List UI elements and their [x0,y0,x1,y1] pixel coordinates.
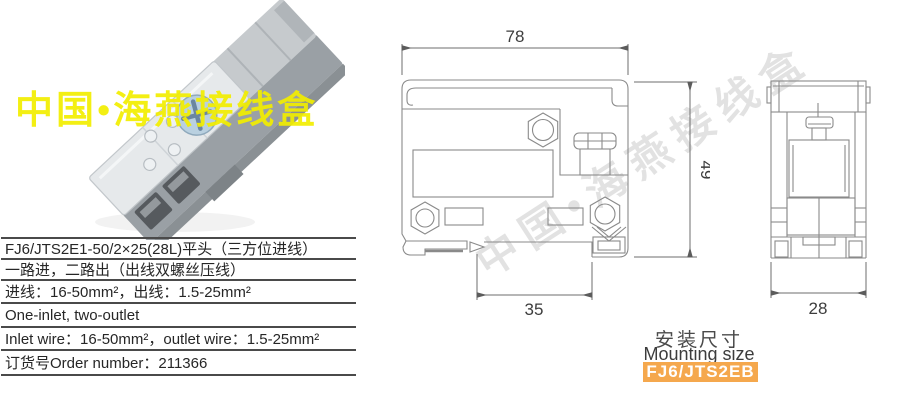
dim-label-depth: 28 [809,299,828,318]
front-view-drawing: 78 49 35 [385,18,710,323]
hex-screw-left-icon [411,202,439,234]
model-badge: FJ6/JTS2EB [643,362,758,382]
dim-label-rail: 35 [525,300,544,319]
top-screw [806,103,833,140]
front-view-dimensions: 78 49 35 [402,27,710,319]
product-datasheet: 中国•海燕接线盒 中国•海燕接线盒 FJ6/JTS2E1-50/2×25(28L… [0,0,900,411]
spec-table: FJ6/JTS2E1-50/2×25(28L)平头（三方位进线） 一路进，二路出… [1,237,356,376]
front-view-body [402,80,628,257]
side-view-drawing: 28 [748,58,900,320]
spec-row-wire-en: Inlet wire：16-50mm²，outlet wire：1.5-25mm… [1,326,356,349]
dim-label-height: 49 [697,161,710,180]
spec-row-wire-cn: 进线：16-50mm²，出线：1.5-25mm² [1,279,356,302]
side-clamp-screw [574,133,616,175]
side-view-dimensions: 28 [771,262,866,318]
spec-row-config-en: One-inlet, two-outlet [1,302,356,326]
spec-row-config-cn: 一路进，二路出（出线双螺丝压线） [1,258,356,279]
dim-label-width: 78 [506,27,525,46]
spec-row-model: FJ6/JTS2E1-50/2×25(28L)平头（三方位进线） [1,237,356,258]
side-view-body [767,81,870,258]
photo-watermark-text: 中国•海燕接线盒 [15,90,355,132]
spec-row-order-number: 订货号Order number：211366 [1,349,356,376]
